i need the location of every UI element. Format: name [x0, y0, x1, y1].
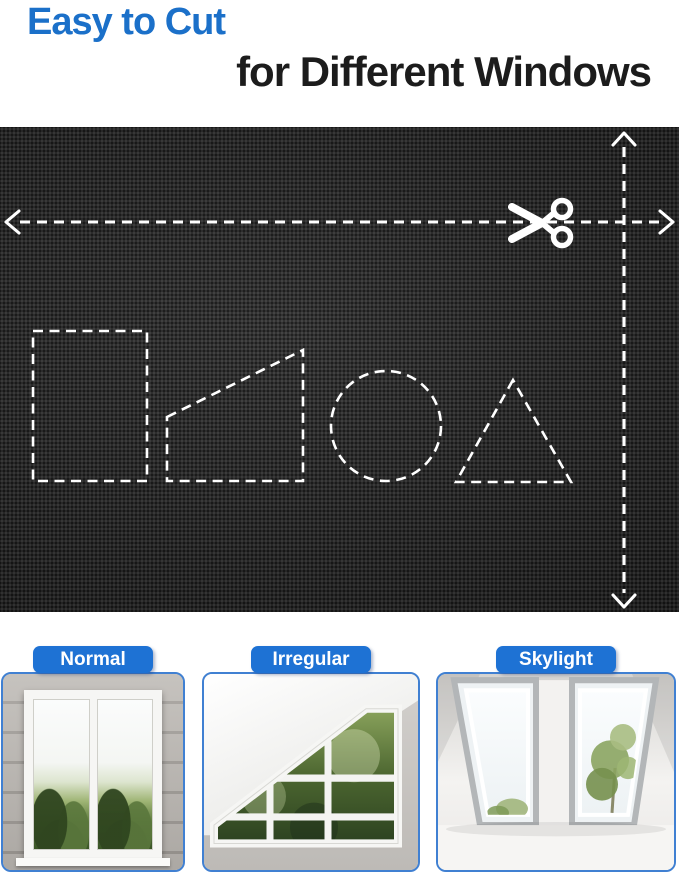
- window-pane: [33, 699, 90, 850]
- cutting-guides: [0, 127, 679, 612]
- page-title-line2: for Different Windows: [236, 48, 651, 96]
- arrow-down-icon: [613, 595, 635, 607]
- skylight-window-illustration: [438, 674, 674, 870]
- window-type-badge: Normal: [33, 646, 153, 673]
- arrow-up-icon: [613, 133, 635, 145]
- arrow-left-icon: [6, 211, 19, 233]
- window-card-normal: Normal: [1, 646, 185, 870]
- arrow-right-icon: [660, 211, 673, 233]
- window-panes: [33, 699, 153, 850]
- window-sill: [16, 858, 170, 866]
- cut-shape-circle: [331, 371, 441, 481]
- page-title-line1: Easy to Cut: [27, 1, 225, 44]
- window-type-badge: Irregular: [251, 646, 371, 673]
- cut-shape-trapezoid: [167, 350, 303, 481]
- page-root: Easy to Cut for Different Windows: [0, 0, 679, 874]
- window-card-irregular: Irregular: [202, 646, 420, 870]
- window-pane: [97, 699, 154, 850]
- window-frame: [24, 690, 162, 859]
- irregular-window-illustration: [204, 674, 418, 870]
- window-photo-normal: [1, 672, 185, 872]
- window-card-skylight: Skylight: [436, 646, 676, 870]
- cut-shape-rectangle: [33, 331, 147, 481]
- window-photo-irregular: [202, 672, 420, 872]
- fabric-swatch: [0, 127, 679, 612]
- window-photo-skylight: [436, 672, 676, 872]
- window-type-badge: Skylight: [496, 646, 616, 673]
- cut-shape-triangle: [456, 380, 571, 482]
